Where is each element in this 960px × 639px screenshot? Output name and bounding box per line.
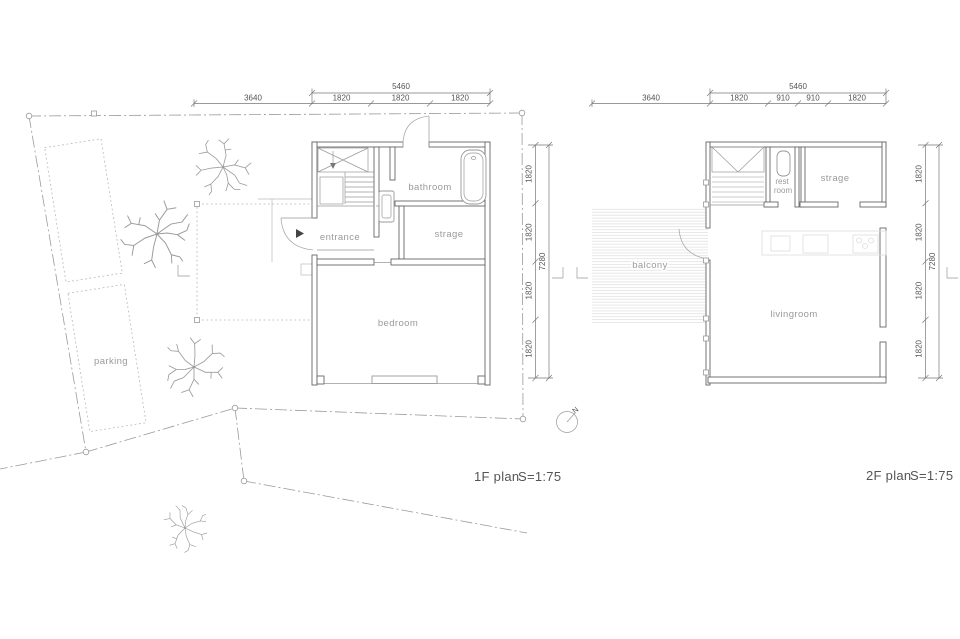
tree-icon: [191, 134, 254, 201]
entrance-step: [301, 264, 313, 275]
dim-1f-3640: 3640: [244, 94, 262, 103]
title-1f: 1F plan: [474, 469, 519, 484]
room-label-strage: strage: [435, 229, 464, 240]
toilet-icon: [777, 151, 790, 176]
door-entrance: [281, 218, 313, 250]
floor-plan-drawing: parking: [0, 0, 960, 639]
door-top: [403, 116, 429, 147]
entrance-arrow-icon: [296, 229, 304, 238]
trees: [111, 134, 255, 560]
floor-plan-canvas: parking: [0, 0, 960, 639]
tree-icon: [155, 330, 233, 404]
parking-label: parking: [94, 356, 128, 367]
plan-1f: entrance bathroom strage bedroom: [258, 116, 490, 385]
svg-text:1820: 1820: [525, 165, 534, 183]
svg-text:1820: 1820: [392, 94, 410, 103]
washbasin-icon: [376, 191, 394, 222]
north-arrow-icon: N: [557, 405, 581, 433]
room-label-bedroom: bedroom: [378, 318, 418, 329]
bedroom-window: [372, 376, 437, 384]
room-label-restroom: rest: [775, 177, 789, 186]
svg-text:1820: 1820: [915, 339, 924, 357]
svg-text:910: 910: [806, 94, 820, 103]
kitchen-counter: [762, 231, 886, 255]
svg-text:1820: 1820: [525, 339, 534, 357]
section-marks: [178, 265, 958, 278]
boundary-point: [26, 113, 32, 119]
scale-1f: S=1:75: [518, 469, 561, 484]
svg-text:1820: 1820: [848, 94, 866, 103]
site-boundary: [0, 110, 527, 533]
scale-2f: S=1:75: [910, 468, 953, 483]
stairs-2f: [712, 147, 764, 202]
boundary-point: [92, 111, 97, 116]
parking-area: parking: [45, 139, 146, 432]
svg-text:7280: 7280: [538, 252, 547, 270]
svg-text:1820: 1820: [915, 165, 924, 183]
svg-text:1820: 1820: [525, 223, 534, 241]
boundary-point: [241, 478, 247, 484]
title-2f: 2F plan: [866, 468, 911, 483]
stove-icon: [853, 235, 878, 253]
svg-text:7280: 7280: [928, 252, 937, 270]
svg-text:1820: 1820: [525, 281, 534, 299]
living-window: [880, 342, 886, 380]
tree-icon: [154, 496, 217, 560]
plan-titles: 1F plan S=1:75 2F plan S=1:75: [474, 468, 953, 484]
boundary-point: [83, 449, 89, 455]
room-label-bathroom: bathroom: [408, 182, 451, 193]
bathtub-icon: [461, 150, 486, 204]
boundary-point: [519, 110, 525, 116]
living-window: [880, 228, 886, 327]
room-label-strage-2f: strage: [821, 173, 850, 184]
north-label: N: [570, 405, 580, 415]
plan-2f: rest room strage livingroom balcony: [592, 142, 886, 385]
room-label-livingroom: livingroom: [770, 309, 817, 320]
svg-text:910: 910: [776, 94, 790, 103]
svg-text:1820: 1820: [915, 281, 924, 299]
dim-1f-5460: 5460: [392, 82, 410, 91]
dim-2f-3640: 3640: [642, 94, 660, 103]
dim-2f-5460: 5460: [789, 82, 807, 91]
stairs-1f: [318, 148, 374, 204]
room-label-entrance: entrance: [320, 232, 360, 243]
room-label-restroom: room: [774, 186, 793, 195]
setback-lines: [195, 202, 313, 323]
room-label-balcony: balcony: [632, 260, 668, 271]
svg-text:1820: 1820: [915, 223, 924, 241]
svg-text:1820: 1820: [730, 94, 748, 103]
boundary-point: [232, 405, 238, 411]
boundary-point: [520, 416, 526, 422]
svg-text:1820: 1820: [451, 94, 469, 103]
dimensions-1f: 5460 3640 1820 1820 1820 1820 1820 1820 …: [191, 82, 553, 381]
svg-text:1820: 1820: [333, 94, 351, 103]
tree-icon: [111, 189, 205, 281]
